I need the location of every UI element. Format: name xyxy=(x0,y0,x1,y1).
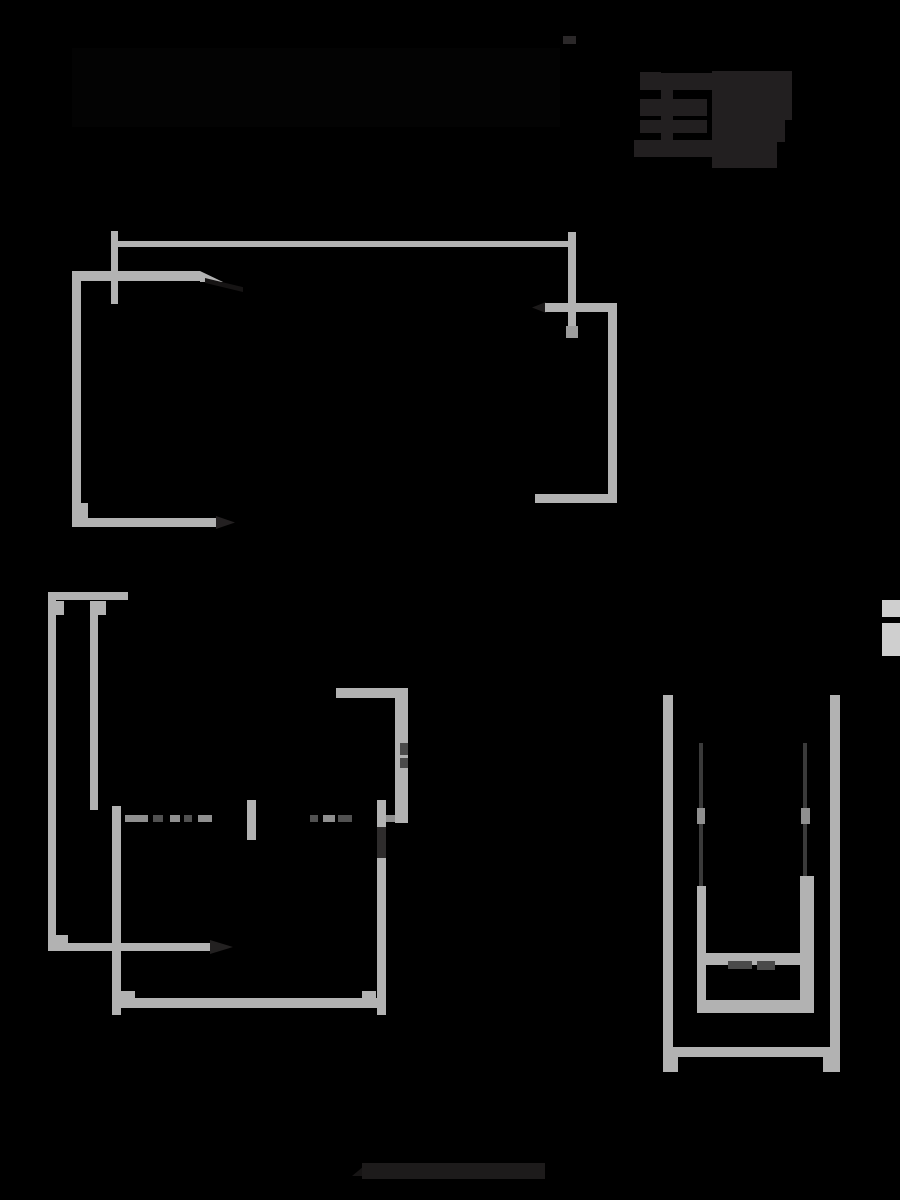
rail-outer-left xyxy=(663,695,673,1057)
rear-dash-7 xyxy=(323,815,335,822)
rear-corner-top-rail xyxy=(336,688,408,698)
logo-arm-1 xyxy=(673,73,714,90)
rail-inner-bar-lower xyxy=(697,1000,814,1013)
rear-dash-9 xyxy=(386,815,395,822)
rear-bottom-rail xyxy=(120,998,382,1008)
logo-blob-mid xyxy=(712,120,785,142)
rear-step-block xyxy=(56,935,68,951)
rear-outer-wall-tab xyxy=(56,601,64,615)
logo-tab-3 xyxy=(640,120,661,133)
rear-inner-wall-tab xyxy=(98,601,106,615)
rear-width-arrow-head xyxy=(210,940,233,954)
upper-roof-diagonal xyxy=(205,278,243,292)
upper-bottom-arrow xyxy=(216,516,235,529)
upper-bracket-right xyxy=(608,303,617,503)
logo-tab-1 xyxy=(640,72,661,90)
rear-inner-left-lower xyxy=(112,806,121,1015)
upper-bracket-bottom xyxy=(535,494,617,503)
footer-smudge xyxy=(362,1163,545,1179)
rail-inner-bar-upper xyxy=(697,953,814,965)
rail-inner-right-dash xyxy=(801,808,810,824)
upper-bottom-edge xyxy=(72,518,216,527)
top-center-dot xyxy=(563,36,576,44)
rear-inner-left-wall xyxy=(90,601,98,810)
rail-outer-right xyxy=(830,695,840,1057)
logo-blob-bottom xyxy=(712,142,777,168)
rail-foot-right xyxy=(823,1057,840,1072)
edge-mark-upper xyxy=(882,600,900,617)
rail-inner-left-wall xyxy=(697,886,706,1013)
rear-dash-6 xyxy=(310,815,318,822)
rear-bottom-tab-right xyxy=(362,991,376,999)
rail-inner-tab-1 xyxy=(728,961,752,969)
rear-dash-4 xyxy=(184,815,192,822)
rear-right-vertical xyxy=(377,800,386,1015)
logo-tab-2 xyxy=(640,99,661,116)
logo-arm-2 xyxy=(673,99,707,116)
rear-center-tick xyxy=(247,800,256,840)
rear-dash-1 xyxy=(125,815,148,822)
upper-top-edge xyxy=(73,271,200,281)
rear-top-rail xyxy=(48,592,128,600)
logo-arm-3 xyxy=(673,120,707,133)
rear-dash-5 xyxy=(198,815,212,822)
rail-inner-right-wall xyxy=(800,876,814,1013)
edge-mark-lower xyxy=(882,623,900,656)
upper-bracket-arrow xyxy=(532,302,546,313)
upper-left-edge xyxy=(72,271,81,527)
logo-blob-top xyxy=(712,71,792,120)
rear-dash-3 xyxy=(170,815,180,822)
rail-inner-tab-2 xyxy=(757,961,775,970)
rear-right-arrow-zone xyxy=(377,827,386,858)
logo-spine xyxy=(661,73,673,157)
hidden-title-bar xyxy=(72,48,560,127)
rear-corner-nub-1 xyxy=(400,743,408,755)
upper-dim-arrow-nub xyxy=(566,326,578,338)
rear-corner-nub-2 xyxy=(400,758,408,768)
upper-dim-tick-right xyxy=(568,232,576,337)
logo-arm-4 xyxy=(673,140,714,157)
rear-width-arrow-line xyxy=(48,943,210,951)
upper-top-edge-taper xyxy=(200,271,223,282)
rear-outer-left-wall xyxy=(48,592,56,951)
upper-corner-block xyxy=(72,503,88,527)
rail-inner-left-dash xyxy=(697,808,705,824)
logo-tab-4 xyxy=(634,140,661,157)
rail-inner-left-thin xyxy=(699,743,703,888)
footer-smudge-tip xyxy=(352,1166,364,1176)
drawing-canvas xyxy=(0,0,900,1200)
upper-bracket-top xyxy=(545,303,617,312)
rail-bottom-bar xyxy=(663,1047,840,1057)
rail-inner-right-thin xyxy=(803,743,807,878)
rear-corner-right-wall xyxy=(395,688,408,823)
rail-foot-left xyxy=(663,1057,678,1072)
rear-bottom-tab-left xyxy=(120,991,135,999)
rear-dash-8 xyxy=(338,815,352,822)
upper-dim-tick-left xyxy=(111,231,118,304)
rear-dash-2 xyxy=(153,815,163,822)
upper-dim-line xyxy=(114,241,572,247)
